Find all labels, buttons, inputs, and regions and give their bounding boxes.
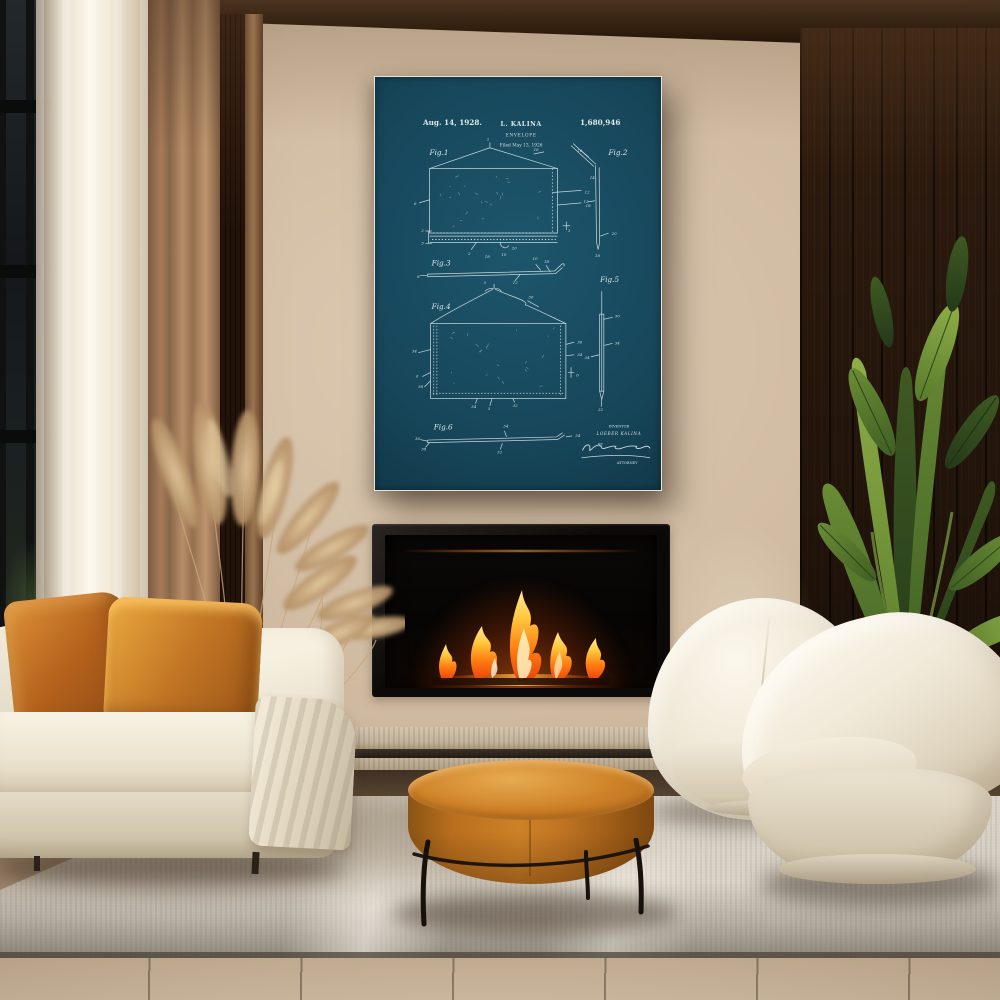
flames bbox=[406, 568, 636, 686]
figure-numeral: 6 bbox=[416, 374, 419, 379]
pouf-metal-legs bbox=[400, 838, 662, 930]
figure-numeral: 34 bbox=[577, 352, 583, 357]
figure-numeral: 16 bbox=[577, 148, 583, 153]
patent-inventor-block: INVENTOR LOEBER KALINA BY ATTORNEY bbox=[595, 425, 641, 465]
patent-date: Aug. 14, 1928. bbox=[422, 118, 482, 127]
figure-numeral: 30 bbox=[615, 313, 621, 318]
flame-tongues bbox=[432, 590, 610, 686]
figure-numeral: 6 bbox=[576, 373, 579, 378]
figure-numeral: 30 bbox=[528, 295, 534, 300]
figure-numeral: 10 bbox=[501, 252, 507, 257]
figure-numeral: 2 bbox=[420, 228, 424, 233]
figure-numeral: 20 bbox=[611, 231, 618, 236]
figure-numeral: 3 bbox=[421, 240, 424, 245]
figure-numeral: 18 bbox=[544, 259, 550, 264]
patent-number: 1,680,946 bbox=[580, 118, 620, 127]
sofa-leg bbox=[34, 856, 40, 871]
figure-numeral: 38 bbox=[418, 384, 424, 389]
inventor-label: INVENTOR bbox=[609, 425, 630, 429]
figure-label: Fig.1 bbox=[429, 148, 449, 157]
figure-numeral: 6 bbox=[414, 201, 417, 206]
figure-numeral: 3 bbox=[568, 228, 571, 233]
figure-label: Fig.3 bbox=[431, 258, 451, 267]
fireplace bbox=[372, 524, 670, 697]
cream-throw-blanket bbox=[248, 695, 358, 850]
figure-numeral: 18 bbox=[595, 253, 601, 258]
rug-edge bbox=[0, 952, 1000, 958]
patent-inventor-name: L. KALINA bbox=[500, 121, 541, 128]
attorney-label: ATTORNEY bbox=[616, 461, 638, 465]
patent-header-text: Aug. 14, 1928. L. KALINA ENVELOPE Filed … bbox=[422, 118, 620, 149]
figure-numeral: 12 bbox=[513, 280, 519, 285]
figure-label: Fig.4 bbox=[431, 302, 451, 311]
figure-numeral: 18 bbox=[485, 254, 491, 259]
figure-numeral: 32 bbox=[497, 450, 503, 455]
firebox bbox=[385, 535, 657, 688]
figure-numeral: 2 bbox=[467, 251, 471, 256]
patent-drawing: Aug. 14, 1928. L. KALINA ENVELOPE Filed … bbox=[375, 77, 661, 490]
blueprint-patent-print: Aug. 14, 1928. L. KALINA ENVELOPE Filed … bbox=[375, 77, 661, 490]
figure-numeral: 38 bbox=[421, 446, 427, 451]
figure-numeral: 34 bbox=[585, 355, 591, 360]
inventor-full-name: LOEBER KALINA bbox=[595, 431, 641, 436]
figure-label: Fig.5 bbox=[599, 275, 619, 284]
figure-numeral: 14 bbox=[590, 175, 596, 180]
figure-numeral: 5 bbox=[488, 406, 491, 411]
figure-numeral: 34 bbox=[503, 424, 509, 429]
figure-numeral: 36 bbox=[577, 339, 583, 344]
figure-label: Fig.2 bbox=[608, 148, 628, 157]
figure-numeral: 2 bbox=[486, 136, 490, 141]
living-room-scene: Aug. 14, 1928. L. KALINA ENVELOPE Filed … bbox=[0, 0, 1000, 1000]
figure-numeral: 32 bbox=[513, 403, 519, 408]
figure-numeral: 20 bbox=[511, 246, 518, 251]
paper-texture-marks bbox=[440, 176, 555, 387]
figure-numeral: 16 bbox=[534, 147, 540, 152]
figure-numeral: 34 bbox=[575, 433, 581, 438]
firebox-glow-line bbox=[401, 550, 640, 552]
figure-numeral: 8 bbox=[417, 274, 420, 279]
by-label: BY bbox=[598, 442, 603, 446]
armchair-metal-plinth bbox=[778, 854, 976, 884]
figure-numeral: 5 bbox=[484, 280, 487, 285]
perforation-dots bbox=[432, 239, 556, 240]
figure-numeral: 12 bbox=[585, 190, 591, 195]
figure-numeral: 34 bbox=[471, 404, 477, 409]
patent-figures-linework bbox=[418, 143, 650, 458]
leather-pouf-top bbox=[408, 760, 654, 820]
sofa-leg bbox=[251, 852, 259, 874]
figure-numeral: 32 bbox=[598, 407, 604, 412]
figure-label: Fig.6 bbox=[433, 423, 453, 432]
figure-numeral: 36 bbox=[415, 436, 421, 441]
framed-patent-poster: Aug. 14, 1928. L. KALINA ENVELOPE Filed … bbox=[374, 76, 662, 491]
figure-numeral: 34 bbox=[615, 340, 621, 345]
patent-title: ENVELOPE bbox=[506, 133, 537, 138]
figure-numeral: 34 bbox=[412, 349, 418, 354]
figure-numeral: 10 bbox=[533, 256, 539, 261]
figure-numeral: 12 bbox=[584, 199, 590, 204]
